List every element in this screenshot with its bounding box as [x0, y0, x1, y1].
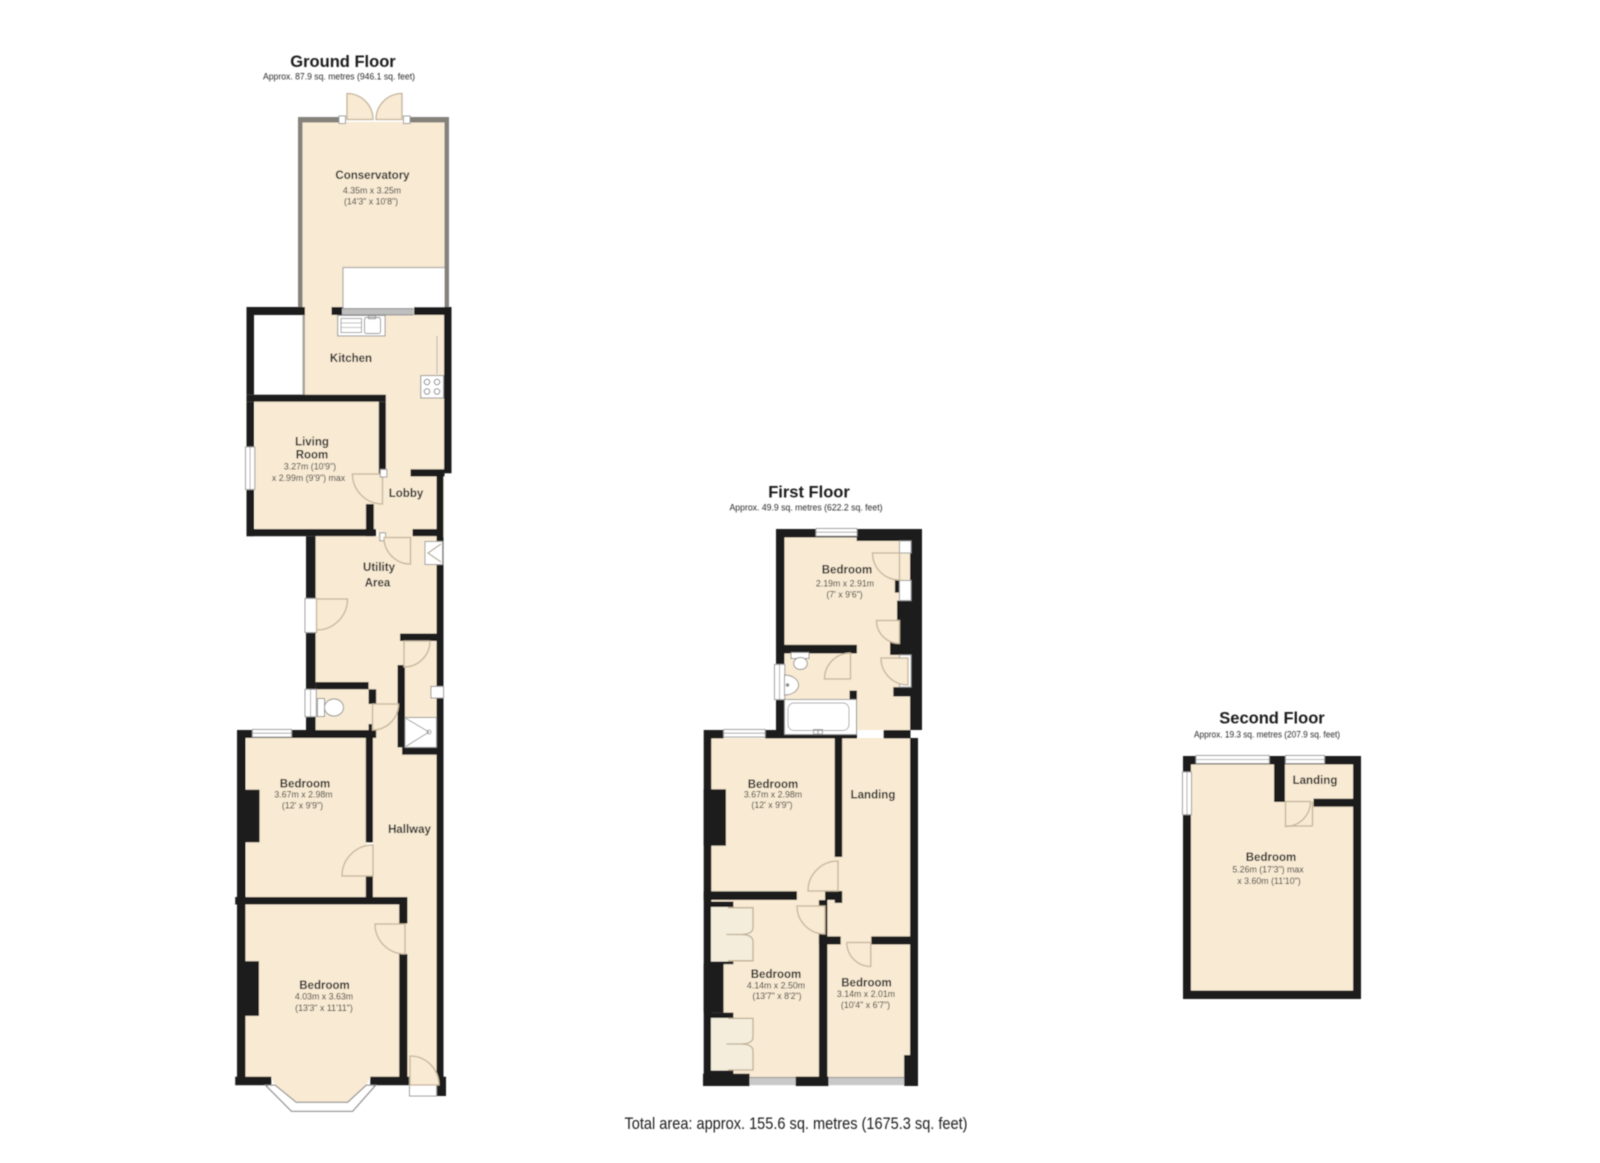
svg-text:(12' x 9'9"): (12' x 9'9")	[751, 800, 792, 810]
svg-text:Room: Room	[296, 450, 329, 462]
svg-text:Ground Floor: Ground Floor	[290, 53, 396, 71]
svg-text:5.26m (17'3") max: 5.26m (17'3") max	[1232, 865, 1304, 875]
svg-text:Landing: Landing	[1293, 775, 1338, 787]
svg-text:Conservatory: Conservatory	[335, 170, 410, 182]
svg-text:(12' x 9'9"): (12' x 9'9")	[282, 801, 323, 811]
svg-text:3.67m x 2.98m: 3.67m x 2.98m	[274, 790, 332, 800]
svg-text:x 3.60m (11'10"): x 3.60m (11'10")	[1237, 876, 1300, 886]
svg-text:3.27m (10'9"): 3.27m (10'9")	[284, 462, 336, 472]
svg-text:Bedroom: Bedroom	[751, 969, 801, 981]
svg-text:Bedroom: Bedroom	[299, 980, 349, 992]
svg-text:x 2.99m (9'9") max: x 2.99m (9'9") max	[272, 473, 346, 483]
svg-text:(13'7" x 8'2"): (13'7" x 8'2")	[752, 991, 801, 1001]
svg-text:Bedroom: Bedroom	[1246, 852, 1296, 864]
svg-text:Bedroom: Bedroom	[822, 565, 872, 577]
svg-text:4.35m x 3.25m: 4.35m x 3.25m	[343, 186, 401, 196]
svg-text:Second Floor: Second Floor	[1219, 710, 1325, 728]
svg-text:Approx. 49.9 sq. metres (622.2: Approx. 49.9 sq. metres (622.2 sq. feet)	[730, 503, 883, 513]
svg-text:Utility: Utility	[363, 562, 396, 574]
svg-text:Kitchen: Kitchen	[330, 353, 372, 365]
svg-text:Approx. 19.3 sq. metres (207.9: Approx. 19.3 sq. metres (207.9 sq. feet)	[1194, 730, 1340, 740]
svg-text:Living: Living	[295, 437, 329, 449]
svg-text:2.19m x 2.91m: 2.19m x 2.91m	[816, 579, 874, 589]
svg-text:3.14m x 2.01m: 3.14m x 2.01m	[837, 989, 895, 999]
svg-text:Total area: approx. 155.6 sq.: Total area: approx. 155.6 sq. metres (16…	[625, 1115, 968, 1133]
svg-text:3.67m x 2.98m: 3.67m x 2.98m	[744, 790, 802, 800]
svg-text:Approx. 87.9 sq. metres (946.1: Approx. 87.9 sq. metres (946.1 sq. feet)	[263, 72, 415, 82]
svg-text:4.14m x 2.50m: 4.14m x 2.50m	[747, 981, 805, 991]
svg-text:(10'4" x 6'7"): (10'4" x 6'7")	[841, 1000, 890, 1010]
svg-text:(14'3" x 10'8"): (14'3" x 10'8")	[344, 197, 398, 207]
svg-text:First Floor: First Floor	[768, 484, 850, 502]
svg-text:Area: Area	[365, 578, 391, 590]
svg-text:Bedroom: Bedroom	[841, 978, 891, 990]
svg-text:4.03m x 3.63m: 4.03m x 3.63m	[295, 992, 353, 1002]
svg-text:(13'3" x 11'11"): (13'3" x 11'11")	[295, 1003, 353, 1013]
svg-text:(7' x 9'6"): (7' x 9'6")	[826, 590, 862, 600]
svg-text:Landing: Landing	[851, 790, 896, 802]
svg-text:Lobby: Lobby	[389, 488, 424, 500]
svg-text:Hallway: Hallway	[388, 824, 431, 836]
